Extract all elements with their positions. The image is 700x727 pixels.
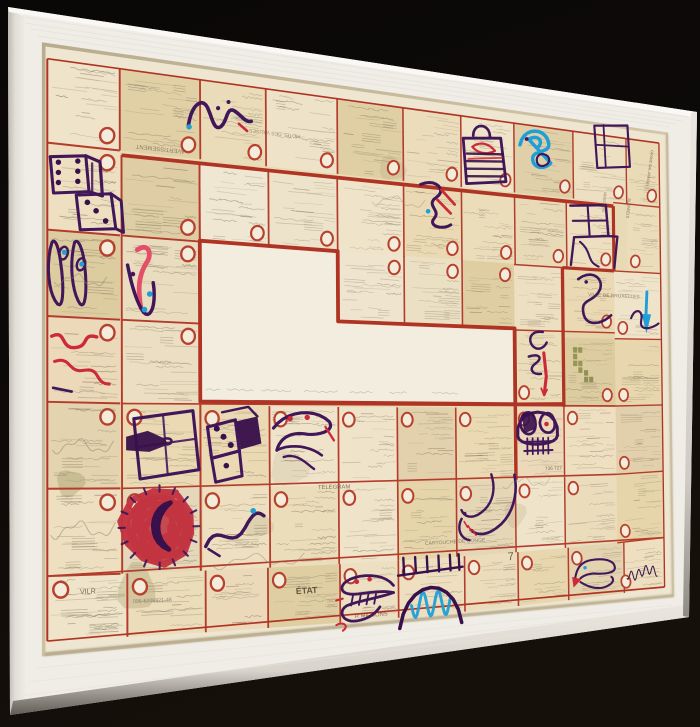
svg-text:TELEGRAM: TELEGRAM [318, 484, 351, 491]
svg-text:7: 7 [507, 551, 514, 563]
svg-text:736 727: 736 727 [545, 465, 563, 471]
svg-text:ÉTAT: ÉTAT [296, 585, 319, 596]
svg-text:VILR: VILR [80, 586, 96, 596]
